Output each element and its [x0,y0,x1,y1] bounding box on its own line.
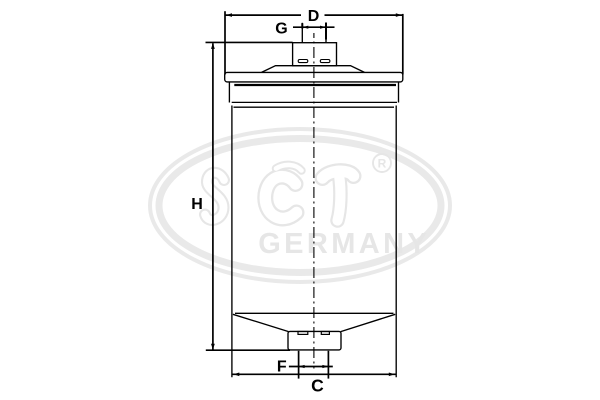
svg-text:GERMANY: GERMANY [258,228,430,260]
svg-text:D: D [308,8,320,25]
svg-text:H: H [191,196,203,213]
svg-text:F: F [277,359,287,376]
svg-text:C: C [311,375,324,395]
svg-text:G: G [275,20,287,37]
svg-text:R: R [378,157,387,171]
